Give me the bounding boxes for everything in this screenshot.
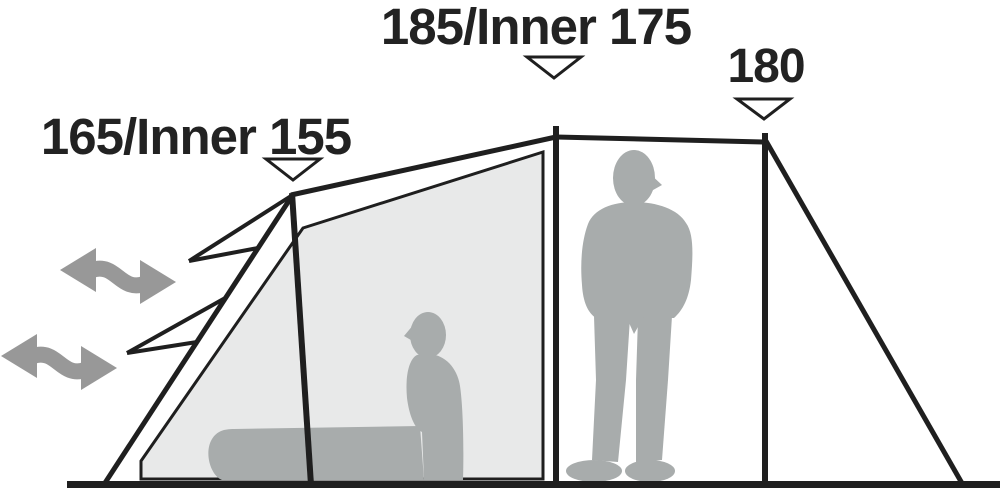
tent-height-diagram: 165/Inner 155 185/Inner 175 180 xyxy=(0,0,1000,489)
airflow-arrow-icon-lower xyxy=(1,334,117,390)
vent-flap-upper xyxy=(189,196,291,261)
down-triangle-icon-center xyxy=(527,57,581,78)
down-triangle-icon-rear xyxy=(737,99,790,119)
guy-line xyxy=(766,141,963,485)
tent-drawing xyxy=(0,0,1000,489)
height-label-front: 165/Inner 155 xyxy=(41,111,351,162)
height-label-rear: 180 xyxy=(727,43,804,91)
height-label-center: 185/Inner 175 xyxy=(381,1,691,52)
standing-person-silhouette xyxy=(566,150,692,482)
ridge-line xyxy=(556,137,764,142)
vent-flap-lower xyxy=(127,297,227,353)
airflow-arrow-icon-upper xyxy=(60,248,176,304)
